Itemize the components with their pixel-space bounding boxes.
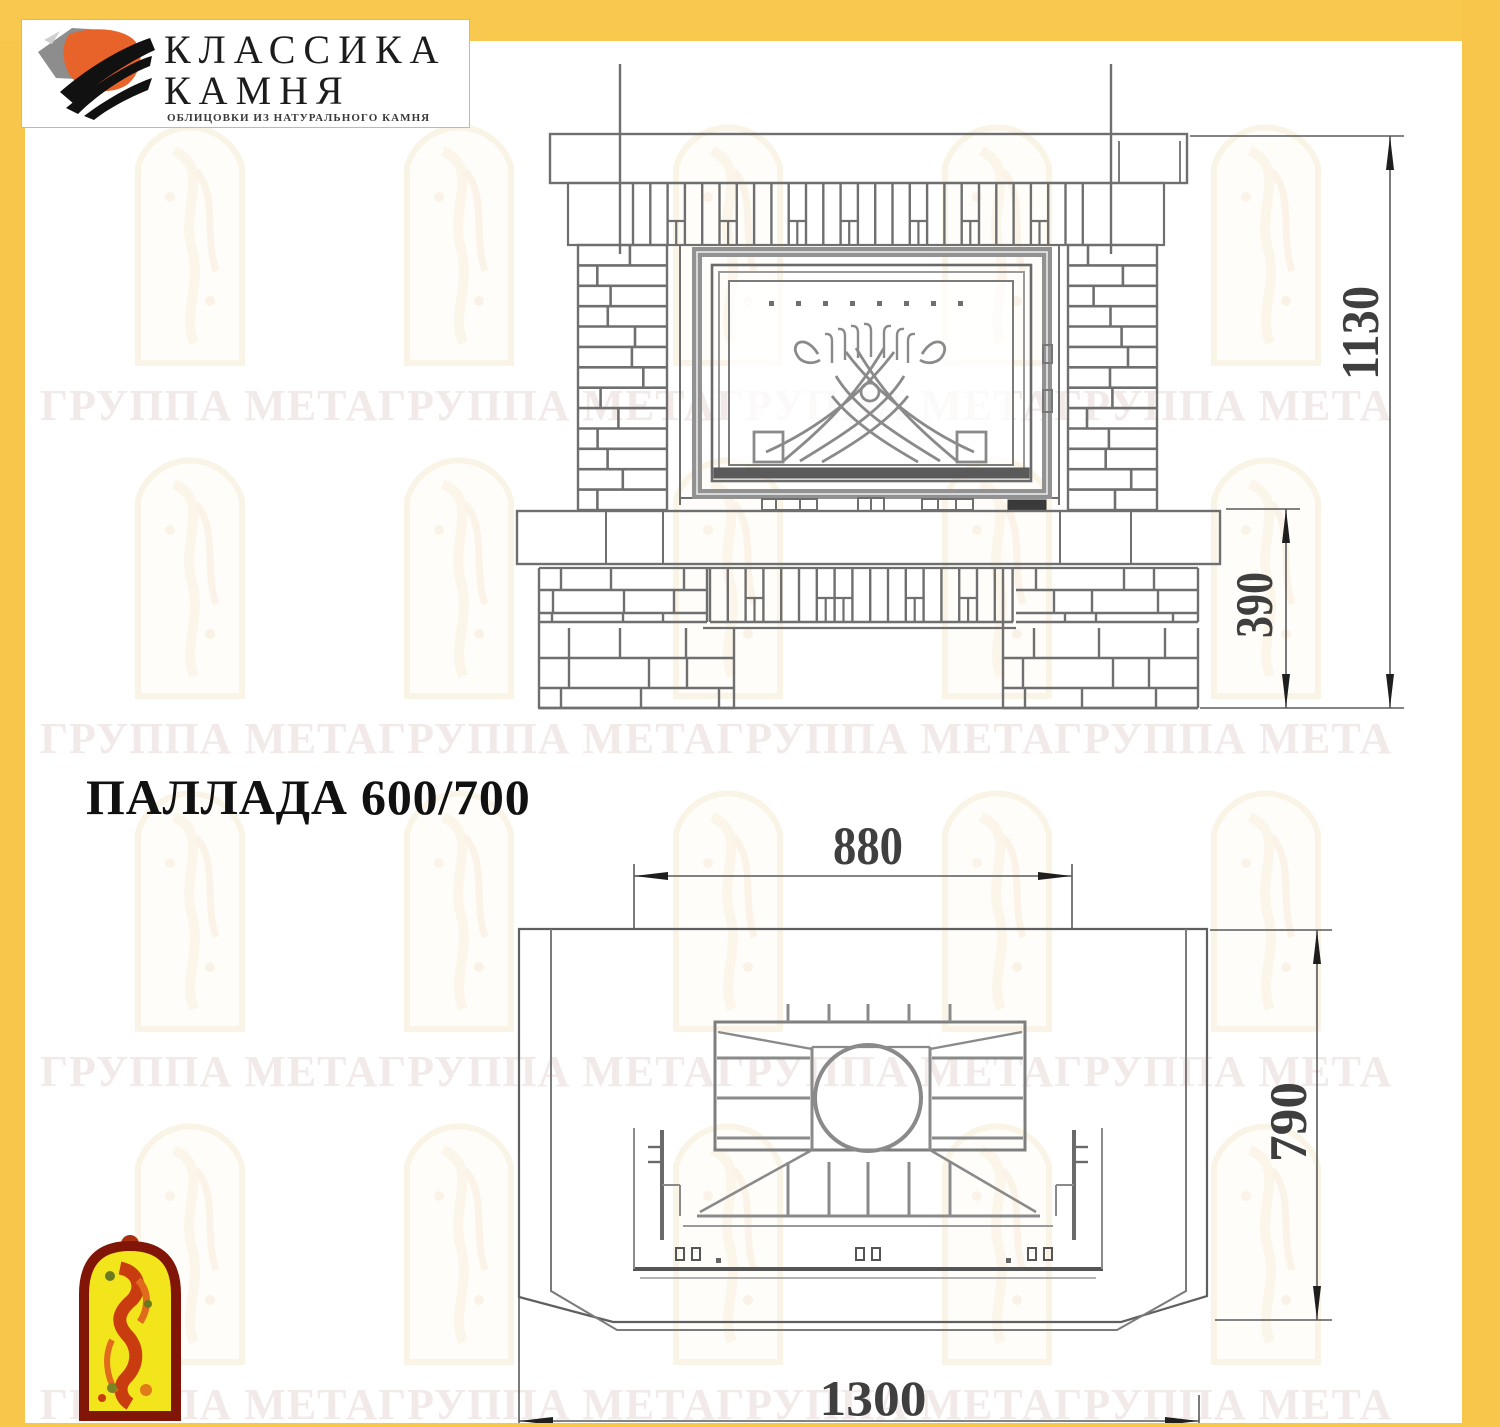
svg-text:880: 880 bbox=[833, 816, 903, 876]
svg-text:790: 790 bbox=[1260, 1082, 1318, 1162]
svg-text:1130: 1130 bbox=[1332, 286, 1390, 380]
svg-text:КЛАССИКА: КЛАССИКА bbox=[164, 27, 447, 72]
svg-text:1300: 1300 bbox=[820, 1370, 927, 1426]
svg-text:390: 390 bbox=[1226, 572, 1284, 638]
svg-text:ОБЛИЦОВКИ ИЗ НАТУРАЛЬНОГО КАМН: ОБЛИЦОВКИ ИЗ НАТУРАЛЬНОГО КАМНЯ bbox=[167, 112, 430, 124]
svg-text:КАМНЯ: КАМНЯ bbox=[164, 68, 351, 113]
